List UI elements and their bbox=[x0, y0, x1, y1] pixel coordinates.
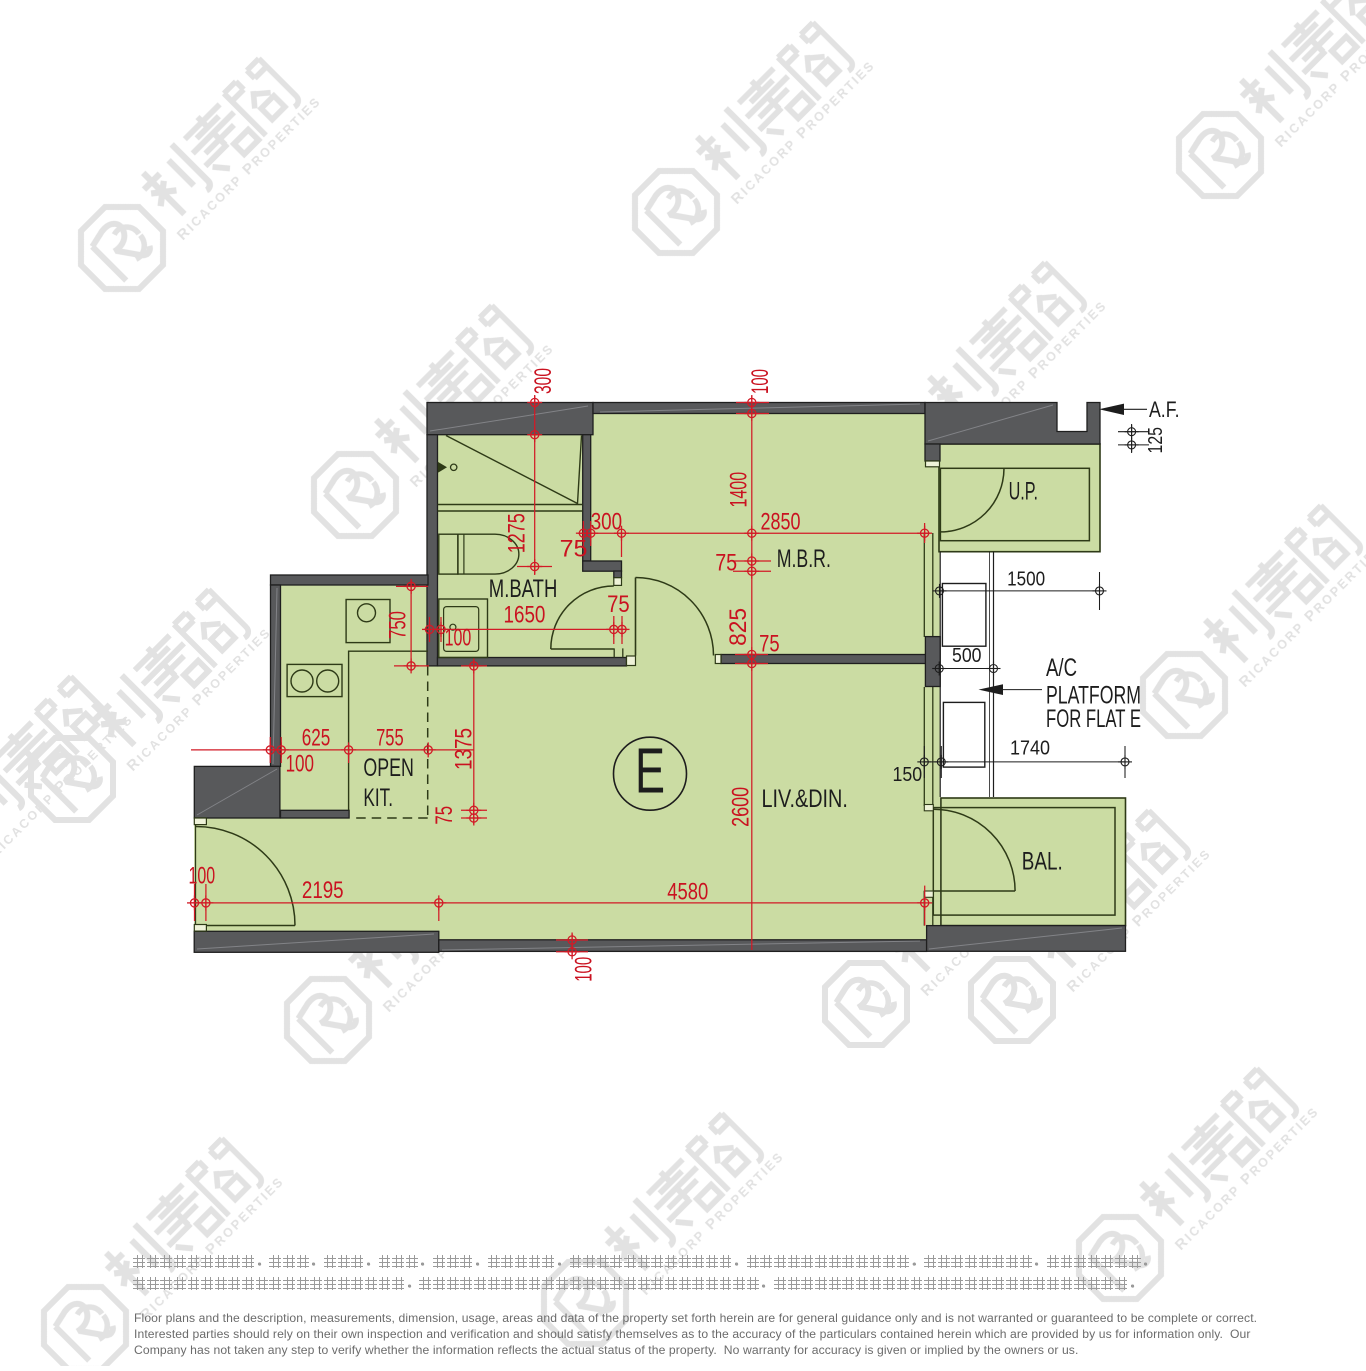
svg-text:1650: 1650 bbox=[504, 602, 546, 629]
svg-text:1275: 1275 bbox=[504, 513, 531, 553]
svg-text:KIT.: KIT. bbox=[363, 784, 393, 812]
svg-text:300: 300 bbox=[530, 368, 557, 394]
svg-text:100: 100 bbox=[571, 957, 598, 982]
svg-text:75: 75 bbox=[431, 806, 458, 825]
svg-text:125: 125 bbox=[1145, 427, 1167, 454]
svg-text:500: 500 bbox=[952, 645, 982, 667]
svg-text:100: 100 bbox=[445, 625, 472, 652]
svg-text:E: E bbox=[635, 735, 665, 807]
svg-text:1740: 1740 bbox=[1010, 738, 1050, 760]
svg-text:100: 100 bbox=[286, 751, 314, 778]
svg-text:750: 750 bbox=[385, 611, 412, 639]
svg-text:M.BATH: M.BATH bbox=[489, 575, 558, 603]
svg-text:1500: 1500 bbox=[1007, 569, 1045, 591]
svg-text:825: 825 bbox=[725, 608, 752, 646]
svg-text:150: 150 bbox=[893, 764, 923, 786]
svg-text:A/C: A/C bbox=[1046, 654, 1077, 682]
svg-text:100: 100 bbox=[189, 863, 216, 890]
svg-text:100: 100 bbox=[747, 369, 774, 394]
svg-text:1400: 1400 bbox=[726, 472, 753, 508]
svg-text:75: 75 bbox=[607, 591, 630, 618]
svg-text:300: 300 bbox=[591, 509, 622, 536]
svg-text:BAL.: BAL. bbox=[1022, 847, 1063, 875]
svg-text:2850: 2850 bbox=[761, 509, 801, 536]
svg-text:OPEN: OPEN bbox=[363, 754, 414, 782]
svg-text:FOR FLAT E: FOR FLAT E bbox=[1046, 705, 1141, 733]
svg-text:LIV.&DIN.: LIV.&DIN. bbox=[762, 785, 848, 813]
svg-text:2195: 2195 bbox=[302, 877, 344, 904]
svg-text:M.B.R.: M.B.R. bbox=[777, 545, 831, 573]
svg-text:75: 75 bbox=[560, 536, 588, 563]
svg-text:A.F.: A.F. bbox=[1149, 397, 1180, 422]
svg-text:625: 625 bbox=[302, 725, 331, 752]
svg-text:U.P.: U.P. bbox=[1009, 477, 1038, 505]
svg-text:755: 755 bbox=[376, 725, 404, 752]
svg-text:75: 75 bbox=[759, 631, 780, 658]
svg-text:1375: 1375 bbox=[451, 728, 478, 770]
svg-text:2600: 2600 bbox=[728, 787, 755, 827]
svg-text:4580: 4580 bbox=[667, 879, 708, 906]
svg-text:75: 75 bbox=[715, 550, 737, 577]
